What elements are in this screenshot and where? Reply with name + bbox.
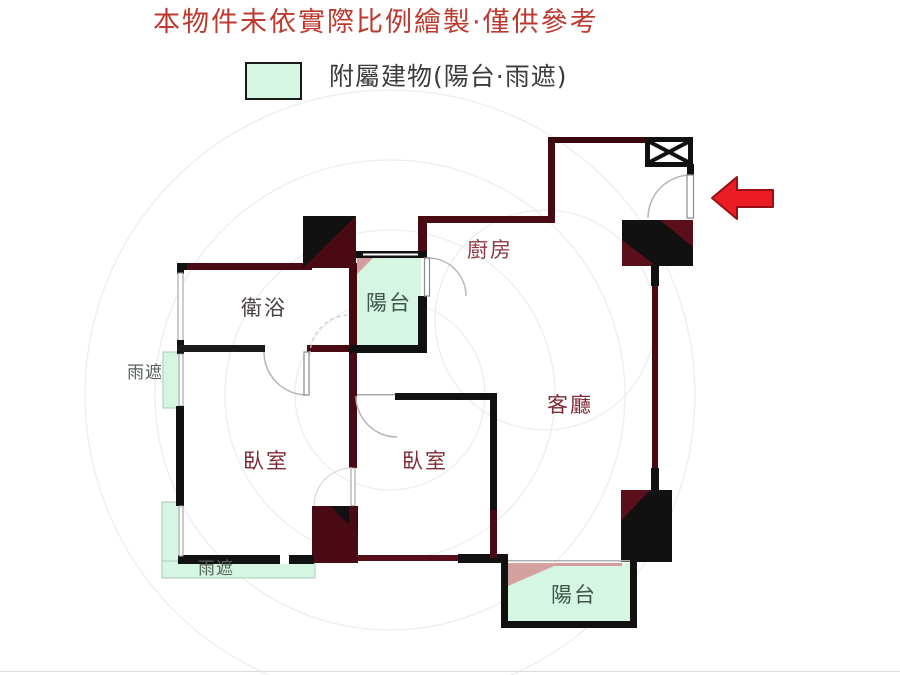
label-rain-shade-bottom: 雨遮	[198, 561, 234, 578]
bedroom-middle-door	[356, 396, 397, 437]
room-label-bathroom: 衛浴	[241, 298, 287, 319]
room-label-balcony-top: 陽台	[366, 293, 412, 314]
bathroom-window	[178, 273, 183, 341]
bedroom-left-swing	[314, 468, 352, 506]
floorplan-drawing	[0, 0, 900, 675]
legend-swatch	[245, 62, 302, 100]
entrance-arrow-icon	[712, 177, 773, 219]
disclaimer-text: 本物件未依實際比例繪製·僅供參考	[153, 9, 599, 36]
bottom-divider	[0, 671, 900, 672]
room-label-bedroom-left: 臥室	[243, 451, 289, 472]
room-label-living-room: 客廳	[547, 395, 593, 416]
room-label-balcony-bottom: 陽台	[551, 585, 597, 606]
room-label-kitchen: 廚房	[467, 240, 513, 261]
entrance-door	[648, 175, 694, 218]
column-entrance	[622, 220, 693, 266]
legend-label: 附屬建物(陽台·雨遮)	[329, 64, 567, 89]
rain-shade-left-strip	[163, 352, 179, 408]
column-bottom-right	[621, 490, 672, 562]
bedroom-divider-opening	[351, 468, 355, 506]
left-window-lower	[179, 506, 183, 556]
kitchen-balcony-door	[425, 258, 467, 296]
label-rain-shade-left: 雨遮	[127, 365, 163, 382]
room-label-bedroom-middle: 臥室	[402, 451, 448, 472]
floorplan-page: 本物件未依實際比例繪製·僅供參考 附屬建物(陽台·雨遮) 衛浴 陽台 廚房 客廳…	[0, 0, 900, 675]
left-window-upper	[179, 354, 183, 406]
boxed-x-symbol	[648, 140, 691, 165]
